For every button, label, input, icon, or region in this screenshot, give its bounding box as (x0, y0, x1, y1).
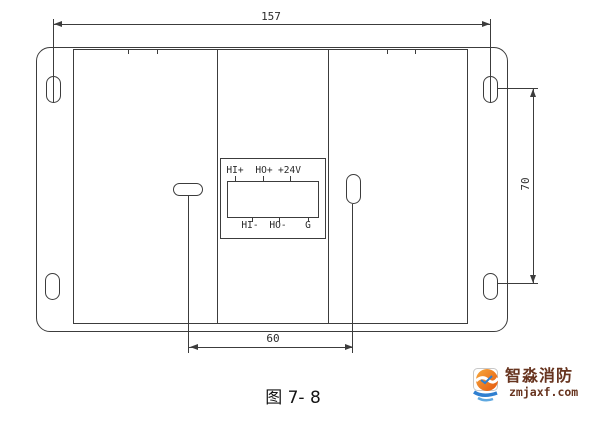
panel-divider-left (217, 50, 218, 324)
terminal-pin-tick (279, 217, 280, 222)
dim60-arrow-right (345, 344, 353, 350)
dim70-arrow-bottom (530, 275, 536, 283)
terminal-pin-tick (252, 217, 253, 222)
dimension-drawing: HI+ HO+ +24V HI- HO- G 157 70 60 图 7- 8 (0, 0, 607, 427)
terminal-strip (227, 181, 319, 218)
dim60-extension-right (352, 204, 353, 353)
dim70-value: 70 (520, 172, 532, 196)
dim70-extension-bottom (497, 283, 538, 284)
figure-caption: 图 7- 8 (238, 388, 348, 408)
slot-vertical (346, 174, 361, 204)
top-edge-tick (157, 50, 158, 54)
terminal-pin-tick (308, 217, 309, 222)
watermark-brand-text: 智淼消防 (505, 367, 573, 385)
terminal-pin-tick (235, 176, 236, 181)
terminal-label-hi-minus: HI- (236, 221, 264, 231)
watermark: 智淼消防 zmjaxf.com (473, 366, 598, 406)
terminal-label-hi-plus: HI+ (221, 166, 249, 176)
panel-divider-right (328, 50, 329, 324)
slot-horizontal (173, 183, 203, 196)
dim157-arrow-left (54, 21, 62, 27)
terminal-label-24v: +24V (273, 166, 306, 176)
top-edge-tick (387, 50, 388, 54)
dim60-extension-left (188, 196, 189, 353)
terminal-label-g: G (299, 221, 317, 231)
dim157-value: 157 (249, 11, 293, 23)
dim70-arrow-top (530, 89, 536, 97)
watermark-site-text: zmjaxf.com (509, 385, 578, 399)
dim157-extension-right (490, 19, 491, 103)
dim60-line (189, 347, 353, 348)
watermark-logo-icon (473, 368, 505, 404)
mount-hole-bottom-left (45, 273, 60, 300)
terminal-label-ho-minus: HO- (264, 221, 292, 231)
mount-hole-bottom-right (483, 273, 498, 300)
dim157-extension-left (53, 19, 54, 103)
top-edge-tick (128, 50, 129, 54)
dim60-value: 60 (253, 333, 293, 345)
dim157-line (53, 24, 490, 25)
terminal-pin-tick (263, 176, 264, 181)
dim60-arrow-left (190, 344, 198, 350)
terminal-pin-tick (290, 176, 291, 181)
dim70-line (533, 88, 534, 283)
top-edge-tick (415, 50, 416, 54)
dim157-arrow-right (482, 21, 490, 27)
